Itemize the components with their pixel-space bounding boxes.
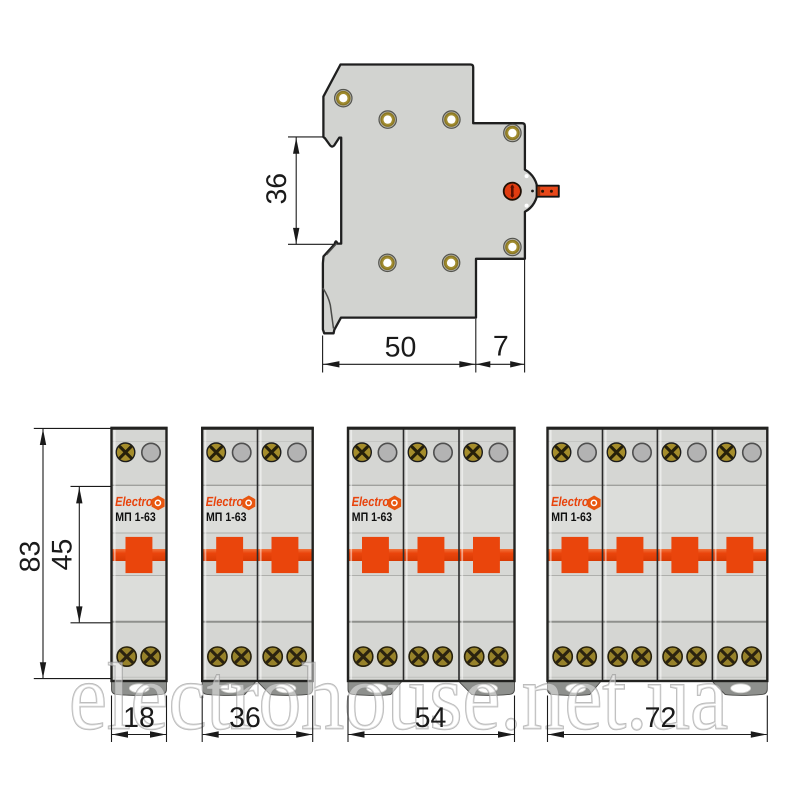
svg-text:18: 18 xyxy=(123,702,155,734)
svg-text:36: 36 xyxy=(261,173,293,205)
svg-text:МП 1-63: МП 1-63 xyxy=(551,510,592,524)
svg-text:electrohouse.net.ua: electrohouse.net.ua xyxy=(69,644,728,750)
svg-text:72: 72 xyxy=(645,702,677,734)
svg-text:МП 1-63: МП 1-63 xyxy=(206,510,247,524)
svg-text:36: 36 xyxy=(229,702,261,734)
svg-text:54: 54 xyxy=(415,702,447,734)
svg-text:МП 1-63: МП 1-63 xyxy=(115,510,156,524)
svg-text:83: 83 xyxy=(15,541,47,573)
svg-text:Electro: Electro xyxy=(206,494,244,509)
svg-text:7: 7 xyxy=(493,331,509,363)
svg-text:МП 1-63: МП 1-63 xyxy=(352,510,393,524)
svg-text:Electro: Electro xyxy=(551,494,589,509)
svg-text:Electro: Electro xyxy=(352,494,390,509)
svg-text:45: 45 xyxy=(47,539,79,571)
svg-text:50: 50 xyxy=(385,331,417,363)
svg-text:Electro: Electro xyxy=(115,494,153,509)
